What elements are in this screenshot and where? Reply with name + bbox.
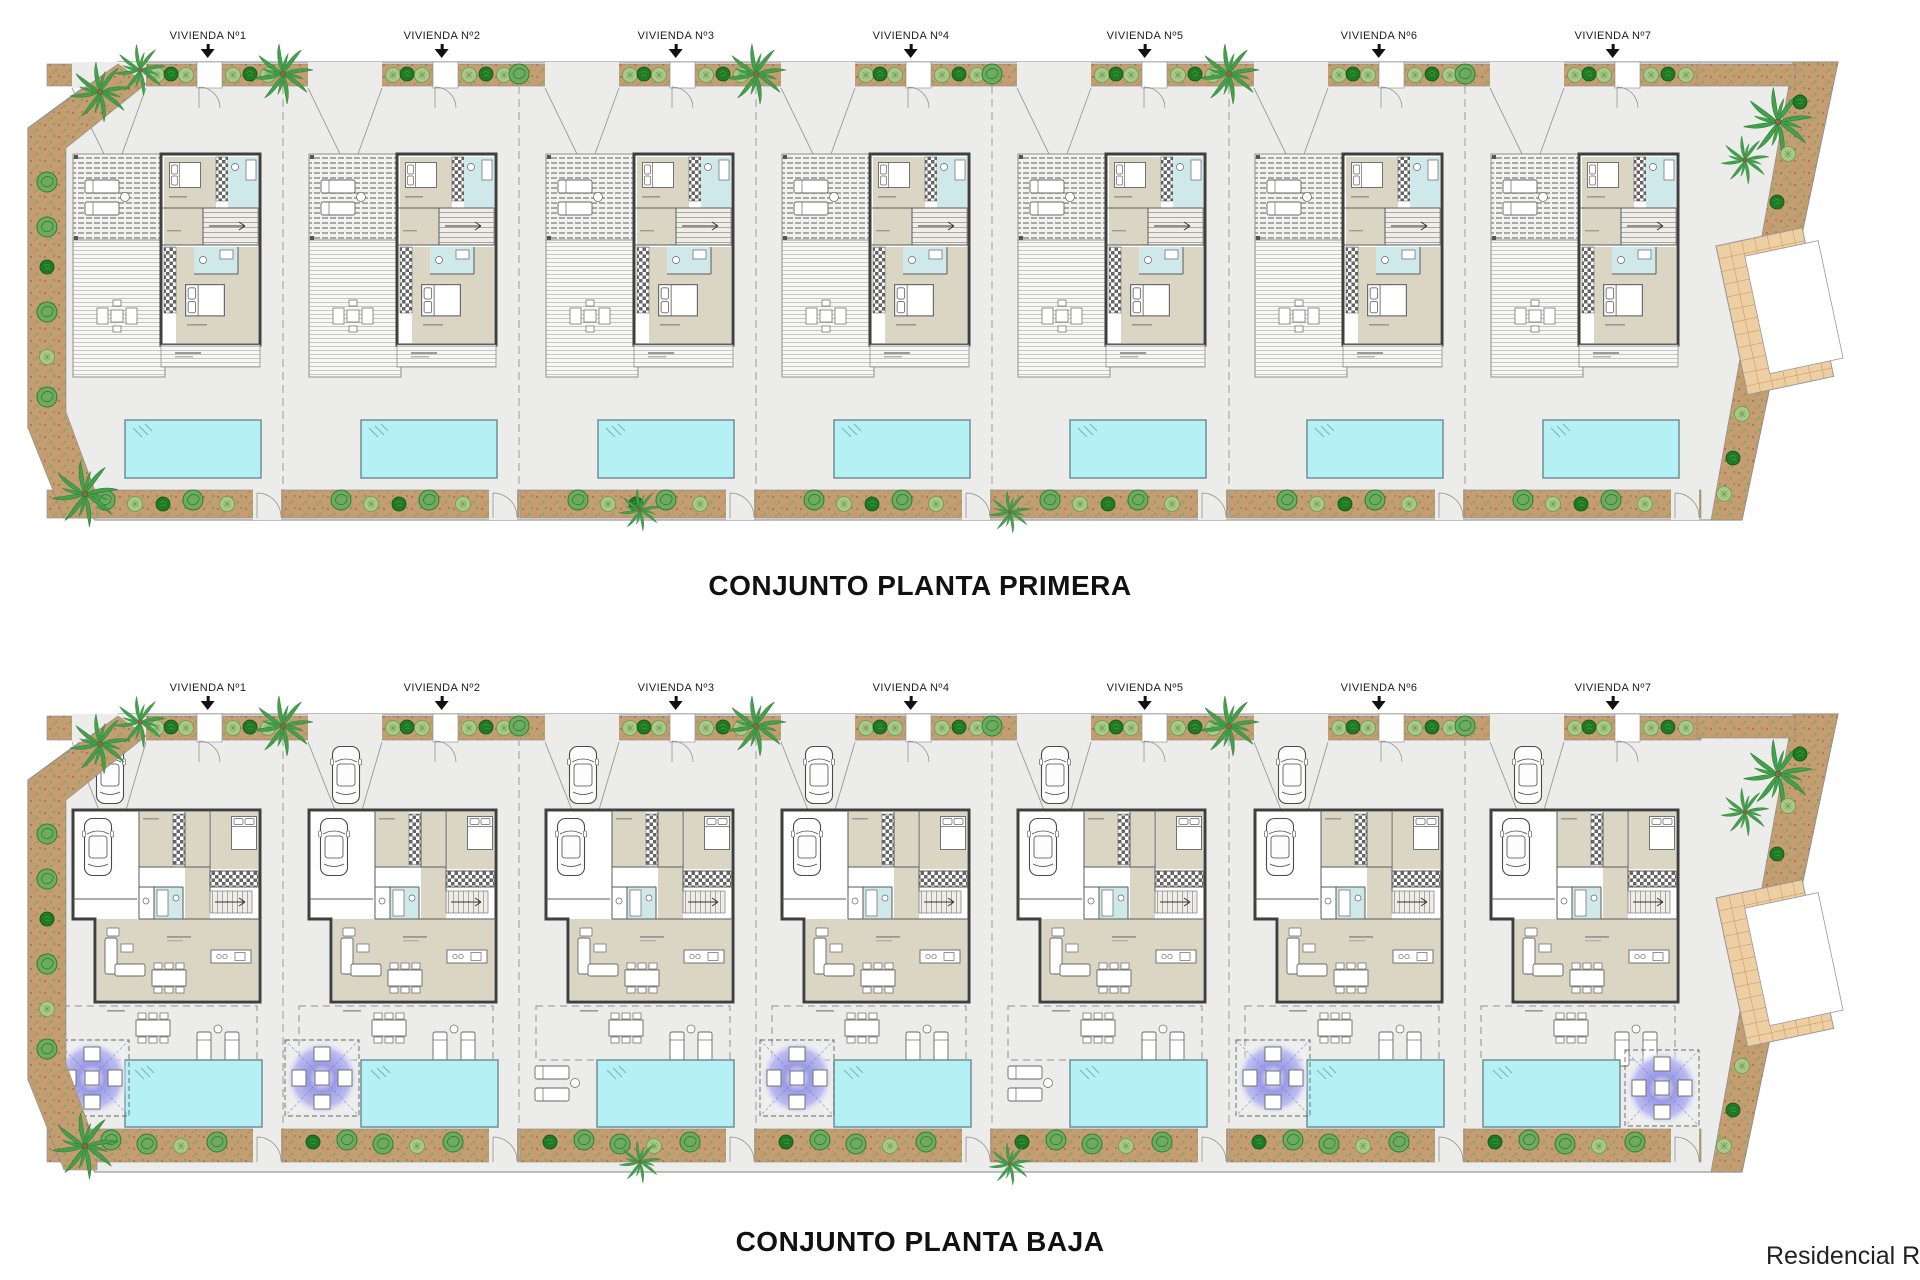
unit-label-text: VIVIENDA Nº2 [404, 30, 481, 42]
unit-label-text: VIVIENDA Nº1 [170, 30, 247, 42]
unit-label-text: VIVIENDA Nº5 [1107, 682, 1184, 694]
planta-baja-plan [28, 696, 1846, 1185]
site-plan-page: { "page": { "watermark": "Residencial R"… [0, 0, 1920, 1280]
unit-label-text: VIVIENDA Nº5 [1107, 30, 1184, 42]
watermark-text: Residencial R [1766, 1242, 1920, 1271]
down-arrow-icon [201, 701, 215, 710]
down-arrow-icon [1372, 49, 1386, 58]
down-arrow-icon [1606, 701, 1620, 710]
unit-label: VIVIENDA Nº4 [873, 30, 950, 58]
unit-label-text: VIVIENDA Nº6 [1341, 30, 1418, 42]
unit-label: VIVIENDA Nº1 [170, 682, 247, 710]
unit-label: VIVIENDA Nº5 [1107, 30, 1184, 58]
unit-label: VIVIENDA Nº3 [638, 682, 715, 710]
down-arrow-icon [1138, 49, 1152, 58]
down-arrow-icon [669, 49, 683, 58]
planta-primera-plan [28, 44, 1846, 533]
unit-label: VIVIENDA Nº7 [1575, 682, 1652, 710]
unit-label: VIVIENDA Nº6 [1341, 30, 1418, 58]
unit-label: VIVIENDA Nº7 [1575, 30, 1652, 58]
planta-baja-title: CONJUNTO PLANTA BAJA [0, 1226, 1840, 1258]
down-arrow-icon [435, 49, 449, 58]
unit-label-text: VIVIENDA Nº6 [1341, 682, 1418, 694]
unit-label-text: VIVIENDA Nº4 [873, 682, 950, 694]
unit-label: VIVIENDA Nº4 [873, 682, 950, 710]
unit-label-text: VIVIENDA Nº4 [873, 30, 950, 42]
down-arrow-icon [669, 701, 683, 710]
down-arrow-icon [435, 701, 449, 710]
unit-label: VIVIENDA Nº2 [404, 682, 481, 710]
planta-primera-title: CONJUNTO PLANTA PRIMERA [0, 570, 1840, 602]
unit-label: VIVIENDA Nº5 [1107, 682, 1184, 710]
site-plan-canvas [0, 0, 1920, 1280]
unit-label-text: VIVIENDA Nº7 [1575, 682, 1652, 694]
unit-label: VIVIENDA Nº1 [170, 30, 247, 58]
unit-label-text: VIVIENDA Nº2 [404, 682, 481, 694]
down-arrow-icon [1372, 701, 1386, 710]
down-arrow-icon [201, 49, 215, 58]
down-arrow-icon [904, 701, 918, 710]
unit-label-text: VIVIENDA Nº3 [638, 682, 715, 694]
down-arrow-icon [904, 49, 918, 58]
down-arrow-icon [1606, 49, 1620, 58]
unit-label: VIVIENDA Nº6 [1341, 682, 1418, 710]
unit-label-text: VIVIENDA Nº7 [1575, 30, 1652, 42]
unit-label: VIVIENDA Nº3 [638, 30, 715, 58]
down-arrow-icon [1138, 701, 1152, 710]
unit-label-text: VIVIENDA Nº3 [638, 30, 715, 42]
unit-label: VIVIENDA Nº2 [404, 30, 481, 58]
unit-label-text: VIVIENDA Nº1 [170, 682, 247, 694]
